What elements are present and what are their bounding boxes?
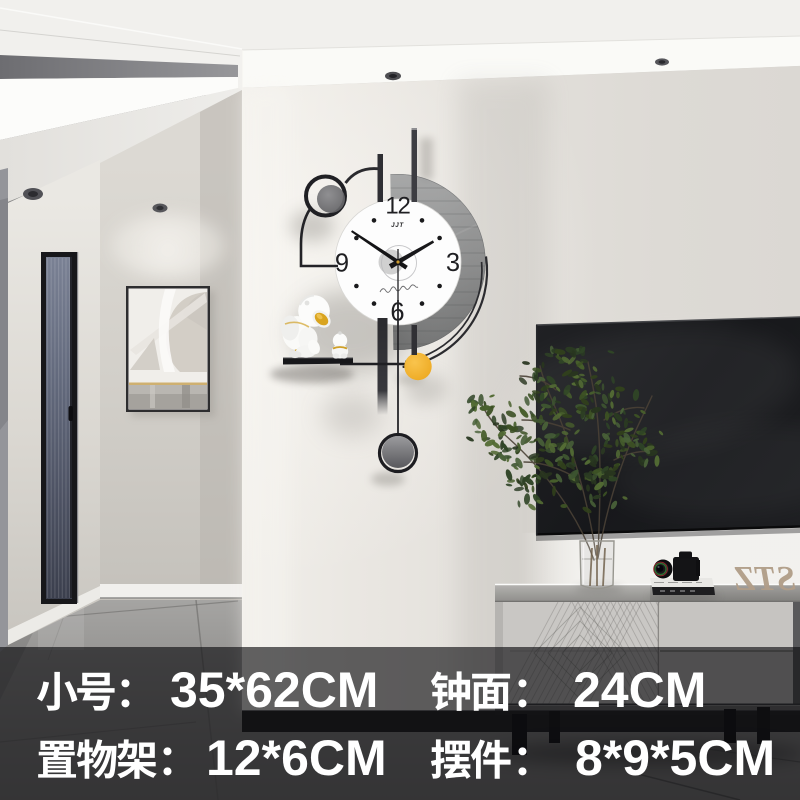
- svg-text:35*62CM: 35*62CM: [170, 662, 378, 718]
- svg-text:JJT: JJT: [391, 222, 404, 229]
- svg-text:STZ: STZ: [734, 559, 796, 598]
- svg-text:12*6CM: 12*6CM: [206, 730, 387, 786]
- svg-text:3: 3: [446, 249, 460, 277]
- svg-text:8*9*5CM: 8*9*5CM: [575, 730, 775, 786]
- svg-text:12: 12: [385, 193, 410, 220]
- svg-text:24CM: 24CM: [573, 662, 706, 718]
- svg-text:9: 9: [335, 250, 349, 278]
